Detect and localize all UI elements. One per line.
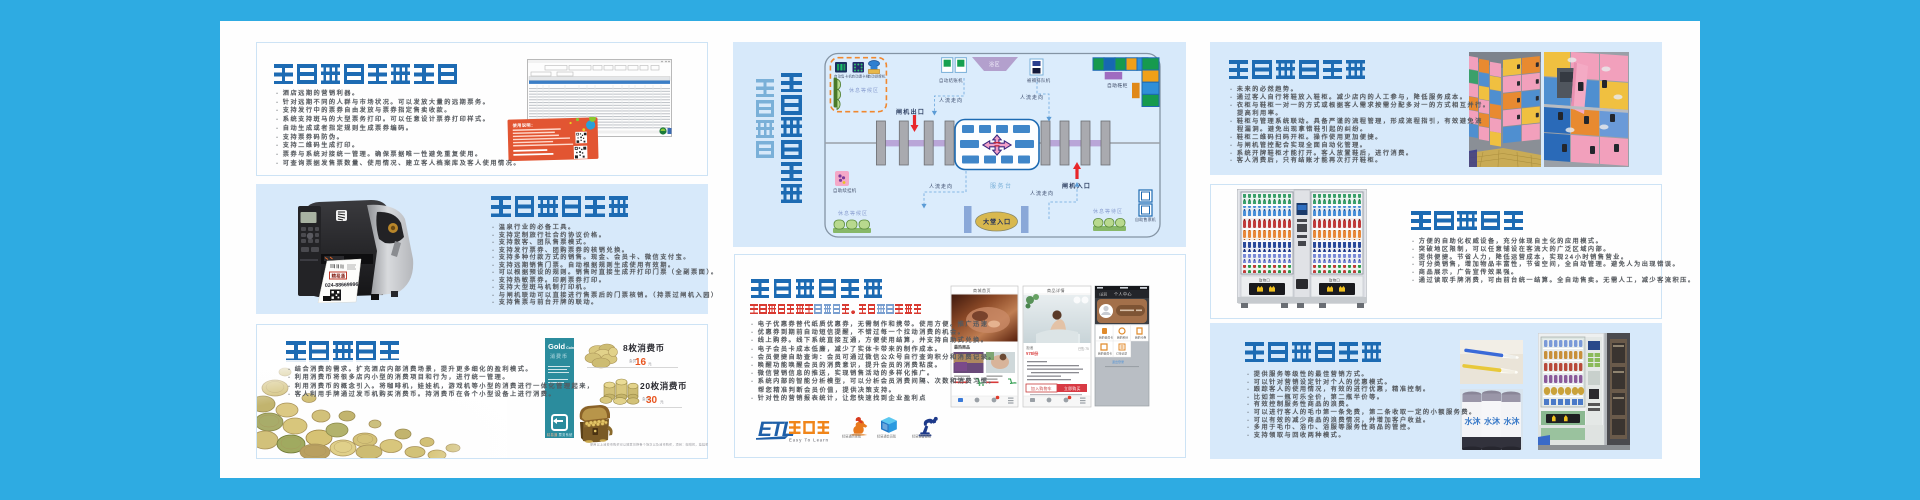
svg-text:服务台: 服务台 bbox=[990, 182, 1013, 190]
svg-text:自动结账机: 自动结账机 bbox=[939, 77, 963, 84]
svg-text:退出登录: 退出登录 bbox=[1112, 359, 1124, 364]
svg-text:自助续挂机: 自助续挂机 bbox=[833, 187, 857, 194]
svg-text:人流走向: 人流走向 bbox=[1030, 190, 1054, 197]
svg-text:8枚消费币: 8枚消费币 bbox=[623, 343, 665, 353]
svg-text:个人中心: 个人中心 bbox=[1114, 291, 1132, 297]
svg-text:加入购物车: 加入购物车 bbox=[1031, 386, 1052, 391]
svg-text:精易通智能版: 精易通智能版 bbox=[912, 434, 932, 439]
svg-text:人流走向: 人流走向 bbox=[939, 97, 963, 104]
svg-text:〈返回: 〈返回 bbox=[1097, 292, 1108, 297]
svg-text:元: 元 bbox=[660, 400, 664, 404]
svg-text:商品详情: 商品详情 bbox=[1047, 287, 1065, 293]
svg-text:已售:75: 已售:75 bbox=[1078, 346, 1089, 351]
svg-text:取物口: 取物口 bbox=[1329, 278, 1340, 283]
svg-text:我的积分: 我的积分 bbox=[1117, 336, 1128, 340]
svg-text:自助鞋柜: 自助鞋柜 bbox=[1107, 82, 1128, 89]
svg-text:¥78/份: ¥78/份 bbox=[1026, 350, 1039, 357]
svg-text:16: 16 bbox=[635, 357, 647, 368]
svg-text:取物口: 取物口 bbox=[1259, 278, 1270, 283]
svg-text:我的会员卡: 我的会员卡 bbox=[1098, 352, 1112, 356]
svg-text:精易通: 精易通 bbox=[332, 273, 346, 280]
svg-text:水沐: 水沐 bbox=[1483, 416, 1501, 426]
svg-text:被褥排队机: 被褥排队机 bbox=[1027, 77, 1051, 84]
svg-text:水沐: 水沐 bbox=[1503, 416, 1521, 426]
svg-text:休息等候区: 休息等候区 bbox=[849, 87, 879, 94]
svg-text:人流走向: 人流走向 bbox=[929, 183, 953, 190]
svg-text:大堂入口: 大堂入口 bbox=[983, 218, 1011, 226]
svg-text:精易通会员版: 精易通会员版 bbox=[877, 434, 897, 439]
svg-text:休息等待区: 休息等待区 bbox=[1093, 208, 1123, 215]
svg-text:商城首页: 商城首页 bbox=[973, 287, 991, 293]
svg-text:人流走向: 人流走向 bbox=[1020, 94, 1044, 101]
svg-text:休息等候区: 休息等候区 bbox=[838, 210, 868, 217]
svg-text:Easy To Learn: Easy To Learn bbox=[789, 438, 829, 443]
svg-text:024-88669996: 024-88669996 bbox=[325, 282, 359, 289]
svg-text:自动售卡机: 自动售卡机 bbox=[834, 74, 852, 79]
svg-text:自动领牌机: 自动领牌机 bbox=[868, 74, 886, 79]
svg-text:我的会员卡: 我的会员卡 bbox=[1099, 336, 1113, 340]
svg-text:自助售票机: 自助售票机 bbox=[1135, 216, 1156, 222]
svg-text:20枚消费币: 20枚消费币 bbox=[640, 381, 687, 391]
svg-text:精易通商家版: 精易通商家版 bbox=[842, 434, 862, 439]
svg-text:30: 30 bbox=[646, 395, 658, 406]
svg-text:浴区: 浴区 bbox=[989, 61, 1000, 68]
svg-text:立即购买: 立即购买 bbox=[1064, 386, 1081, 391]
svg-text:闸机出口: 闸机出口 bbox=[896, 108, 925, 116]
svg-text:我的卡券: 我的卡券 bbox=[1135, 336, 1146, 340]
svg-text:泡池: 泡池 bbox=[1026, 345, 1034, 350]
svg-text:元: 元 bbox=[648, 362, 652, 366]
svg-text:订单记录: 订单记录 bbox=[1116, 352, 1127, 356]
svg-text:使用以上消费币购买可以随意兑换各个场次以及消币购买，项目：咖: 使用以上消费币购买可以随意兑换各个场次以及消币购买，项目：咖啡机，娃娃机，游戏机… bbox=[590, 442, 708, 447]
